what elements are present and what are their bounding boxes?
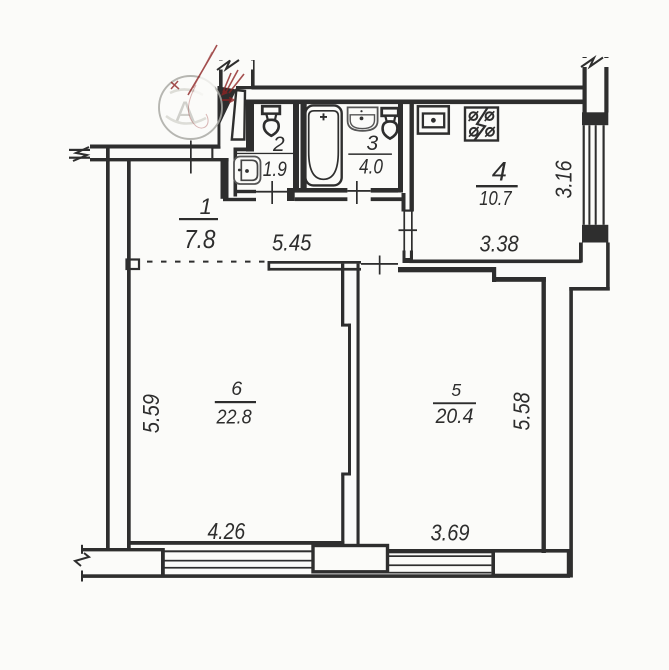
svg-text:4.26: 4.26 [207,518,245,544]
svg-text:3.16: 3.16 [550,160,576,199]
svg-text:5: 5 [451,380,461,400]
svg-text:5.58: 5.58 [509,392,535,430]
svg-text:5.59: 5.59 [138,394,164,433]
svg-text:6: 6 [231,378,242,400]
svg-text:4.0: 4.0 [359,156,383,179]
svg-text:22.8: 22.8 [216,405,253,428]
svg-text:5.45: 5.45 [272,229,312,255]
svg-text:4: 4 [492,157,507,187]
svg-text:7.8: 7.8 [184,224,216,254]
svg-text:3.69: 3.69 [431,519,470,545]
svg-text:20.4: 20.4 [435,405,474,428]
svg-text:1: 1 [200,194,212,219]
svg-text:10.7: 10.7 [479,188,512,210]
svg-text:1.9: 1.9 [263,158,287,181]
svg-text:3.38: 3.38 [480,231,519,257]
svg-text:2: 2 [272,133,285,156]
svg-text:3: 3 [367,132,379,155]
